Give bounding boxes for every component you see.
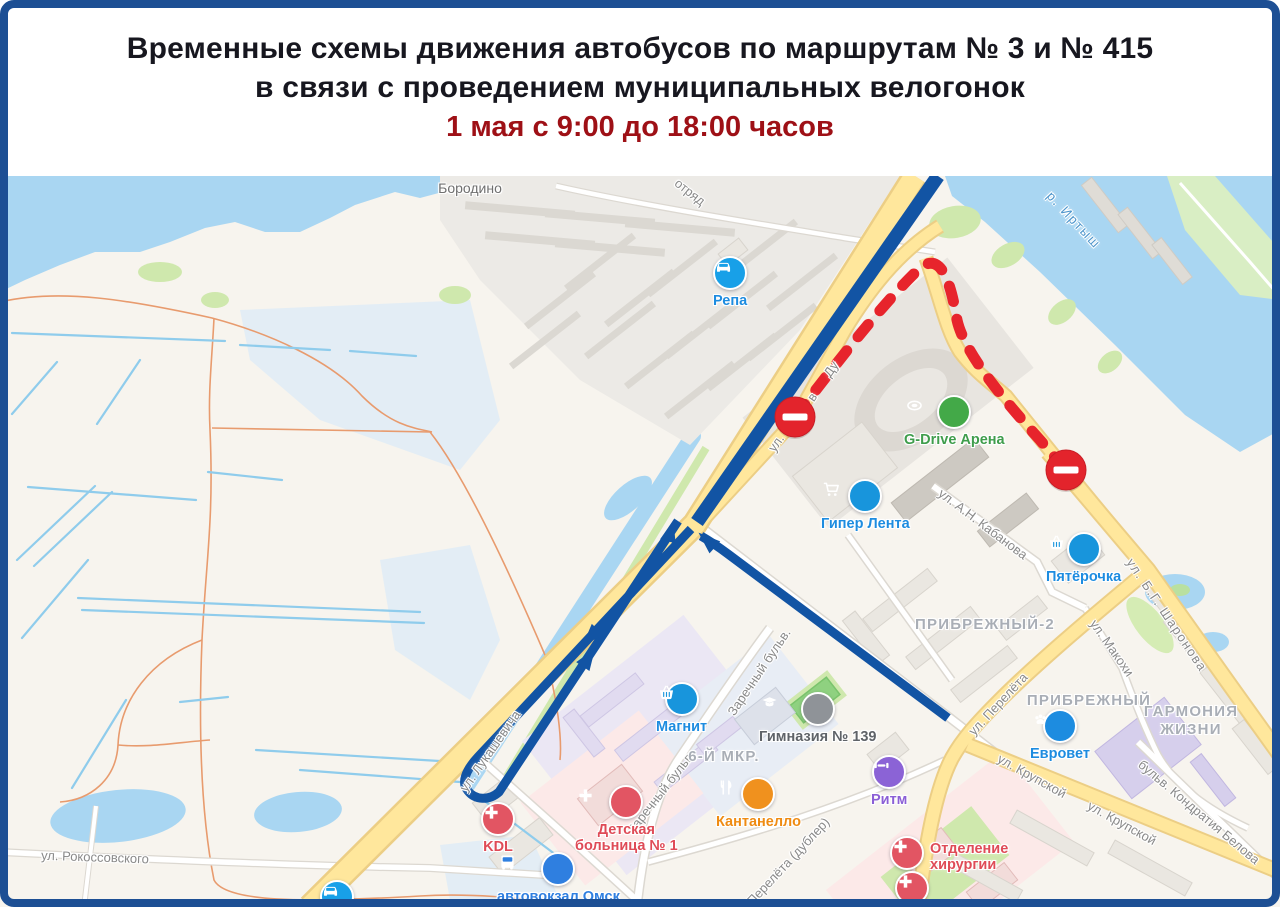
poi-label: Гипер Лента: [821, 516, 910, 532]
poi-evrovet: Евровет: [1030, 709, 1090, 762]
poi-avtovokzal-omsk: автовокзал Омск: [497, 852, 620, 905]
poi-label: Ритм: [871, 792, 907, 808]
poi-car-service: [320, 880, 354, 907]
no-entry-sign: [775, 397, 815, 439]
dumbbell-icon: [872, 755, 906, 789]
cart-icon: [848, 479, 882, 513]
poi-kdl: KDL: [481, 802, 515, 855]
poi-kantanello: Кантанелло: [716, 777, 801, 830]
poi-repa: Репа: [713, 256, 747, 309]
title-line-1: Временные схемы движения автобусов по ма…: [127, 29, 1153, 68]
district-label: ПРИБРЕЖНЫЙ-2: [915, 616, 1055, 634]
basket-icon: [1067, 532, 1101, 566]
poi-magnit: Магнит: [656, 682, 707, 735]
title-line-3: 1 мая с 9:00 до 18:00 часов: [446, 107, 834, 147]
poi-gdrive-arena: G-Drive Арена: [904, 395, 1005, 448]
poi-label: G-Drive Арена: [904, 432, 1005, 448]
poi-label: автовокзал Омск: [497, 889, 620, 905]
poi-otdelenie-hirurgii: Отделениехирургии: [890, 836, 924, 870]
paw-icon: [1043, 709, 1077, 743]
poi-label: Репа: [713, 293, 747, 309]
cross-icon: [895, 871, 929, 905]
poi-label: Евровет: [1030, 746, 1090, 762]
no-entry-sign: [1046, 450, 1086, 492]
poi-label: Пятёрочка: [1046, 569, 1121, 585]
district-label: 6-Й МКР.: [688, 748, 759, 766]
poi-hirurgiya-2: [895, 871, 929, 905]
poi-gimnaziya-139: Гимназия № 139: [759, 692, 877, 745]
grad-cap-icon: [801, 692, 835, 726]
poi-label: Детскаябольница № 1: [575, 822, 678, 854]
basket-icon: [665, 682, 699, 716]
bus-icon: [541, 852, 575, 886]
poi-detskaya-bolnitsa: Детскаябольница № 1: [575, 785, 678, 854]
header: Временные схемы движения автобусов по ма…: [0, 0, 1280, 176]
poi-pyaterochka: Пятёрочка: [1046, 532, 1121, 585]
cross-icon: [481, 802, 515, 836]
restaurant-icon: [741, 777, 775, 811]
poi-label: Гимназия № 139: [759, 729, 877, 745]
cross-icon: [890, 836, 924, 870]
poi-label: Магнит: [656, 719, 707, 735]
title-line-2: в связи с проведением муниципальных вело…: [255, 68, 1025, 107]
cross-icon: [609, 785, 643, 819]
street-label: Бородино: [438, 180, 502, 196]
poi-label: Кантанелло: [716, 814, 801, 830]
car-icon: [713, 256, 747, 290]
poster: РепаG-Drive АренаГипер ЛентаПятёрочкаМаг…: [0, 0, 1280, 907]
poi-label: Отделениехирургии: [930, 841, 1008, 873]
poi-ritm: Ритм: [871, 755, 907, 808]
car-icon: [320, 880, 354, 907]
district-label: ПРИБРЕЖНЫЙ: [1027, 692, 1151, 710]
stadium-icon: [937, 395, 971, 429]
district-label: ГАРМОНИЯЖИЗНИ: [1144, 703, 1238, 739]
poi-giper-lenta: Гипер Лента: [821, 479, 910, 532]
